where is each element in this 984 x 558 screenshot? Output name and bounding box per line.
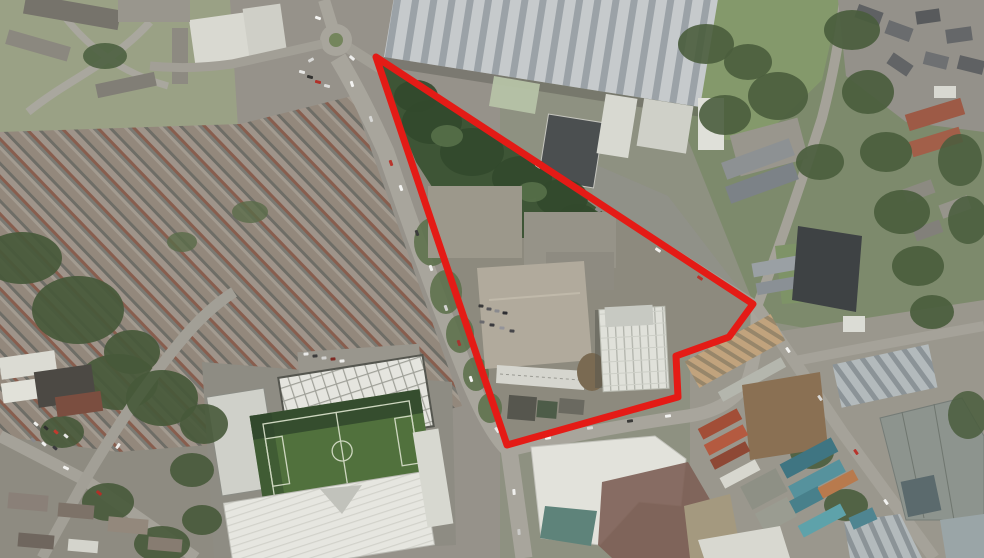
tree-canopy <box>860 132 912 172</box>
white-works-gable <box>605 305 654 327</box>
vehicle <box>517 529 521 535</box>
tree-canopy <box>699 95 751 135</box>
vehicle <box>486 307 491 310</box>
tree-canopy <box>170 453 214 487</box>
tree-canopy <box>104 330 160 374</box>
tree-canopy <box>842 70 894 114</box>
tree-canopy <box>910 295 954 329</box>
vehicle <box>502 311 507 314</box>
vehicle <box>339 359 344 362</box>
aerial-photo <box>0 0 984 558</box>
tree-canopy <box>938 134 982 186</box>
tree-canopy <box>182 505 222 535</box>
vehicle <box>494 309 499 312</box>
site-south-building <box>558 398 584 415</box>
concrete-pad <box>477 261 592 369</box>
vehicle <box>312 354 317 357</box>
tree-canopy <box>167 232 197 252</box>
vehicle <box>478 304 483 307</box>
house-roof <box>934 86 956 98</box>
tree-canopy <box>796 144 844 180</box>
vehicle <box>512 489 516 495</box>
tree-canopy <box>748 72 808 120</box>
vehicle <box>489 323 494 326</box>
vehicle <box>509 329 514 332</box>
tree-canopy <box>892 246 944 286</box>
tree-canopy <box>824 10 880 50</box>
tree-canopy <box>180 404 228 444</box>
aerial-photo-svg <box>0 0 984 558</box>
tree-canopy <box>874 190 930 234</box>
scene-layers <box>0 0 984 558</box>
tree-canopy <box>232 201 268 223</box>
vehicle <box>330 357 335 360</box>
tree-canopy <box>83 43 127 69</box>
north-carpark <box>118 0 190 22</box>
vehicle <box>479 320 484 323</box>
tree-canopy <box>431 125 463 147</box>
road-roundabout-north <box>324 0 332 26</box>
white-shed <box>637 98 694 153</box>
estate-houses-row <box>172 28 188 84</box>
tree-canopy <box>678 24 734 64</box>
vehicle <box>499 326 504 329</box>
roundabout-island <box>329 33 343 47</box>
dark-flat-building <box>792 226 862 312</box>
site-south-building <box>507 395 537 421</box>
bottom-roof <box>940 514 984 558</box>
vehicle <box>321 356 326 359</box>
tree-canopy <box>32 276 124 344</box>
vehicle <box>303 352 308 355</box>
white-annex <box>843 316 865 332</box>
site-south-building <box>536 400 557 419</box>
tree-canopy <box>40 416 84 448</box>
